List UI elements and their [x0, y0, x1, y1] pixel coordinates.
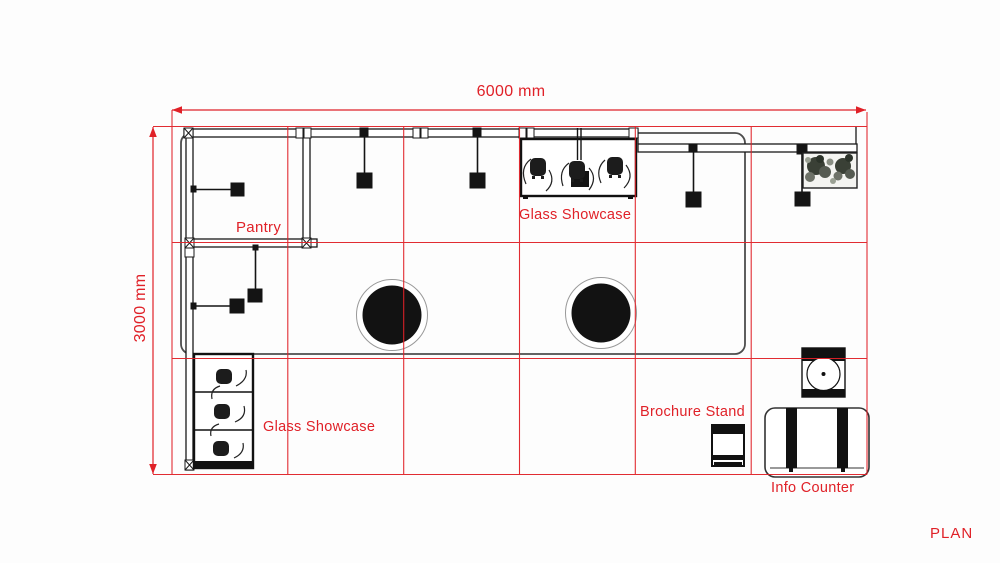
planter: [803, 153, 857, 188]
glass-showcase-left-symbol: [194, 354, 253, 468]
arrow-right-icon: [856, 106, 866, 114]
arrow-down-icon: [149, 464, 157, 474]
pantry-right-wall: [303, 135, 310, 247]
plan-sheet: 6000 mm 3000 mm Pantry Glass Showcase Gl…: [0, 0, 1000, 563]
glass-showcase-left-label: Glass Showcase: [263, 419, 375, 435]
glass-showcase-top-label: Glass Showcase: [519, 207, 631, 223]
height-dimension-label: 3000 mm: [132, 268, 148, 348]
stool-symbol: [802, 348, 845, 397]
hanging-lights: [191, 128, 810, 313]
height-dimension-line: [149, 127, 157, 474]
hanging-light-icon: [686, 144, 701, 207]
brochure-stand-label: Brochure Stand: [640, 404, 745, 420]
info-counter-symbol: [765, 408, 869, 477]
round-table-2: [566, 278, 637, 349]
brochure-stand-symbol: [712, 425, 744, 466]
hanging-light-icon: [248, 245, 262, 302]
round-table-1: [357, 280, 428, 351]
top-wall: [184, 129, 638, 137]
width-dimension-label: 6000 mm: [450, 83, 572, 101]
info-counter-label: Info Counter: [771, 480, 854, 496]
sheet-title: PLAN: [930, 525, 973, 542]
arrow-up-icon: [149, 127, 157, 137]
pantry-label: Pantry: [236, 219, 281, 236]
width-dimension-line: [172, 106, 866, 114]
hanging-light-icon: [191, 183, 244, 196]
hanging-light-icon: [191, 299, 244, 313]
top-wall-right: [638, 144, 857, 152]
glass-showcase-top-symbol: [521, 128, 636, 199]
arrow-left-icon: [172, 106, 182, 114]
